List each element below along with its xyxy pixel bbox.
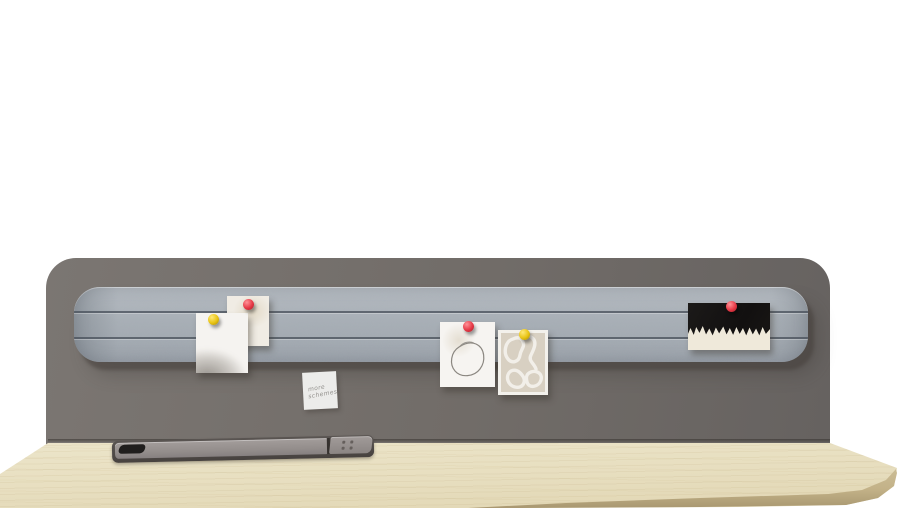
watercolor-wash — [196, 344, 248, 373]
sticky-note: more schemes — [302, 371, 338, 410]
line-art-drawing — [501, 333, 545, 392]
cable-tray-lid — [115, 438, 328, 459]
torn-paint-strip — [688, 326, 770, 350]
cable-tray-slot — [118, 444, 147, 454]
product-photo-stage: more schemes — [0, 0, 900, 508]
push-pin-yellow — [208, 314, 219, 325]
power-socket-dot — [349, 447, 352, 450]
push-pin-red — [463, 321, 474, 332]
power-socket-dot — [342, 441, 345, 444]
power-socket-dot — [350, 440, 353, 443]
push-pin-red — [726, 301, 737, 312]
pinned-card-watercolor — [196, 313, 248, 373]
power-socket-dot — [341, 447, 344, 450]
power-module — [329, 436, 373, 454]
push-pin-red — [243, 299, 254, 310]
push-pin-yellow — [519, 329, 530, 340]
